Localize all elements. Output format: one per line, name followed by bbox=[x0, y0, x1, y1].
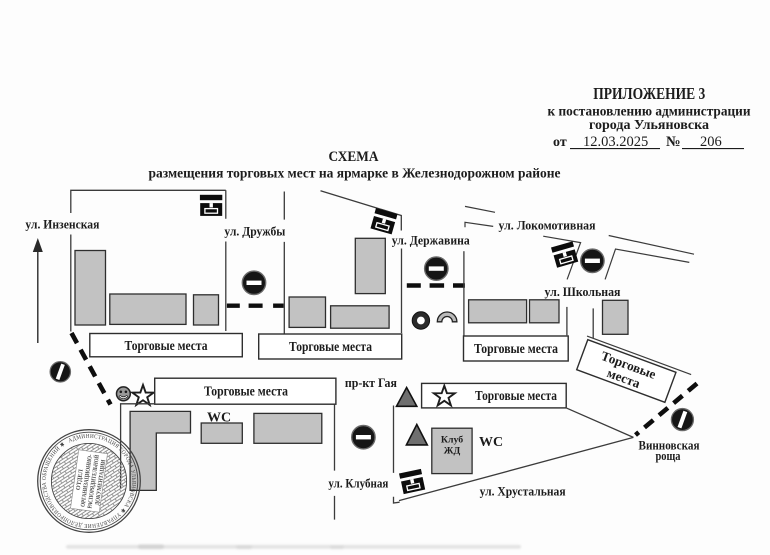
svg-text:ул. Дружбы: ул. Дружбы bbox=[224, 224, 285, 239]
svg-text:№: № bbox=[666, 134, 681, 150]
svg-text:от: от bbox=[553, 135, 567, 150]
svg-text:12.03.2025: 12.03.2025 bbox=[583, 134, 648, 150]
svg-text:WC: WC bbox=[479, 435, 503, 450]
svg-text:Торговые места: Торговые места bbox=[125, 338, 208, 353]
svg-text:ул. Клубная: ул. Клубная bbox=[328, 476, 388, 491]
svg-text:ЖД: ЖД bbox=[444, 446, 461, 457]
svg-text:ул. Хрустальная: ул. Хрустальная bbox=[480, 484, 566, 499]
svg-text:Торговые места: Торговые места bbox=[475, 388, 557, 403]
svg-text:Торговые места: Торговые места bbox=[474, 341, 558, 356]
svg-text:ул. Локомотивная: ул. Локомотивная bbox=[499, 218, 596, 233]
svg-text:ПРИЛОЖЕНИЕ 3: ПРИЛОЖЕНИЕ 3 bbox=[593, 84, 705, 103]
svg-text:роща: роща bbox=[656, 448, 681, 463]
svg-text:города Ульяновска: города Ульяновска bbox=[589, 118, 709, 133]
svg-text:пр-кт Гая: пр-кт Гая bbox=[345, 375, 397, 390]
svg-text:206: 206 bbox=[700, 134, 722, 150]
svg-text:ул. Школьная: ул. Школьная bbox=[545, 284, 621, 299]
svg-text:ул. Державина: ул. Державина bbox=[392, 233, 470, 248]
svg-text:СХЕМА: СХЕМА bbox=[329, 149, 379, 165]
svg-text:размещения торговых мест на яр: размещения торговых мест на ярмарке в Же… bbox=[149, 166, 561, 181]
svg-text:Клуб: Клуб bbox=[441, 435, 463, 446]
svg-text:Торговые места: Торговые места bbox=[204, 384, 288, 399]
svg-text:ул. Инзенская: ул. Инзенская bbox=[25, 217, 99, 232]
svg-text:Торговые места: Торговые места bbox=[289, 339, 372, 354]
